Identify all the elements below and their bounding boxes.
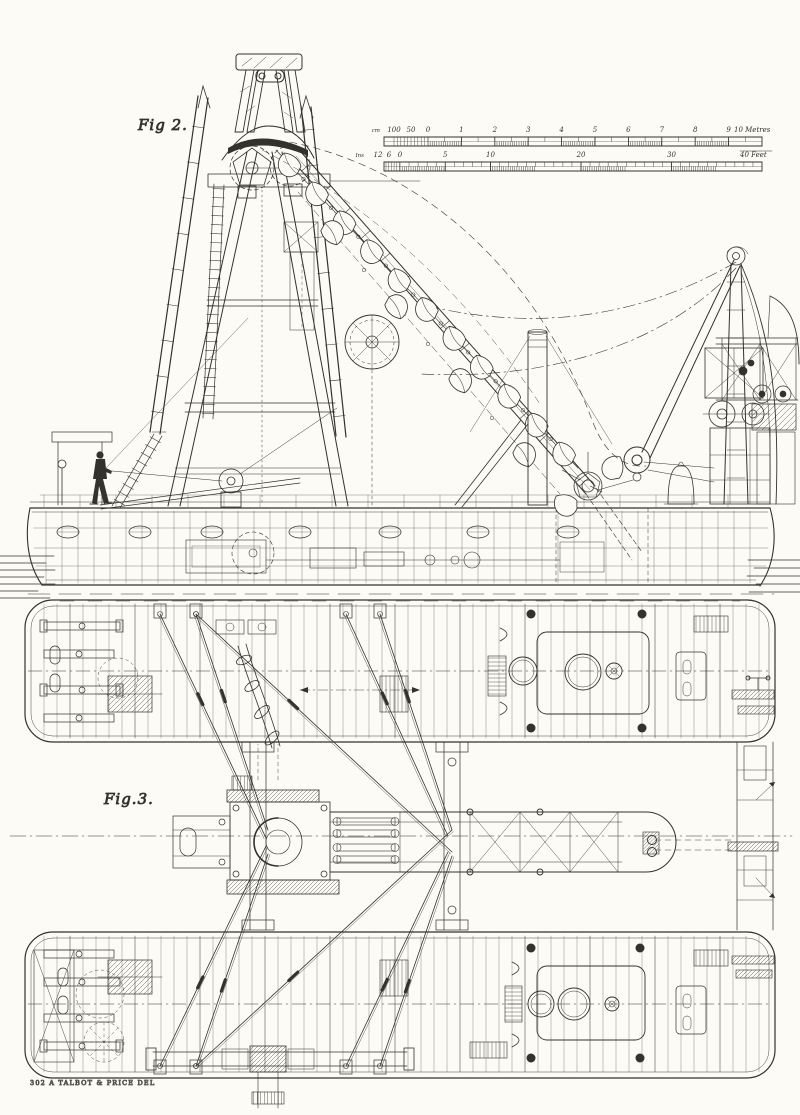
svg-text:Ins: Ins — [354, 153, 364, 159]
man-figure — [90, 451, 112, 504]
stay-rigging — [158, 612, 454, 1069]
water-hatching — [0, 556, 800, 601]
credit-line: 302 A TALBOT & PRICE DEL — [30, 1079, 155, 1087]
tower-cap — [235, 54, 305, 132]
dredger-engineering-drawing: Fig 2. — [0, 0, 800, 1115]
fig2-label: Fig 2. — [137, 116, 188, 134]
underdeck-machinery — [186, 488, 648, 584]
access-ladders — [112, 184, 225, 508]
deck-railing — [44, 495, 728, 507]
ladder-girder — [292, 152, 595, 494]
deck-vent-cowl — [664, 462, 698, 504]
svg-text:2: 2 — [492, 126, 498, 134]
svg-text:0: 0 — [398, 151, 403, 159]
winch-group-bottom — [34, 950, 162, 1062]
scale-bars: cm10050012345678910 Metres Ins1260510203… — [354, 126, 772, 171]
stay-anchors — [154, 604, 733, 1074]
svg-text:6: 6 — [387, 151, 392, 159]
svg-text:9: 9 — [726, 126, 731, 134]
svg-text:12: 12 — [374, 151, 383, 159]
chute-pipe — [216, 620, 420, 748]
svg-text:20: 20 — [576, 151, 586, 159]
guide-curves — [262, 142, 736, 466]
svg-text:30: 30 — [667, 151, 676, 159]
gear-wheel — [345, 315, 399, 505]
fig2-side-elevation: Fig 2. — [0, 54, 800, 601]
fig3-plan-view: Fig.3. — [10, 600, 792, 1108]
center-beam — [146, 744, 414, 1108]
svg-text:5: 5 — [593, 126, 598, 134]
svg-text:3: 3 — [526, 126, 531, 134]
ladder-plan — [173, 776, 676, 894]
svg-text:10: 10 — [486, 151, 495, 159]
imperial-scale-bar: Ins1260510203040 Feet — [354, 151, 772, 171]
jib-pulley-block — [624, 447, 650, 473]
svg-text:0: 0 — [426, 126, 431, 134]
chain-rollers — [333, 818, 399, 864]
svg-text:cm: cm — [372, 128, 380, 134]
timber-stays — [150, 86, 346, 437]
hull-frame-lines — [46, 511, 750, 583]
boiler-casing-bottom — [470, 944, 774, 1063]
metric-scale-bar: cm10050012345678910 Metres — [372, 126, 771, 146]
ladder-strut — [455, 420, 528, 507]
svg-text:50: 50 — [407, 126, 416, 134]
svg-text:6: 6 — [626, 126, 631, 134]
fig3-label: Fig.3. — [103, 790, 154, 808]
bucket-chain-upper — [273, 149, 579, 470]
svg-text:40 Feet: 40 Feet — [739, 151, 767, 159]
pontoon-top — [25, 600, 775, 742]
pontoon-bottom — [25, 932, 775, 1078]
hull — [27, 488, 774, 586]
svg-text:10 Metres: 10 Metres — [734, 126, 771, 134]
svg-text:4: 4 — [558, 126, 563, 134]
pivot-turntable — [227, 776, 339, 894]
gantry-tower — [52, 54, 420, 508]
engraving-sheet: Fig 2. — [0, 0, 800, 1115]
svg-text:100: 100 — [387, 126, 401, 134]
svg-text:8: 8 — [693, 126, 698, 134]
ladder-forward-extension — [173, 816, 230, 868]
svg-text:5: 5 — [443, 151, 448, 159]
crane-mast — [724, 264, 777, 504]
svg-text:7: 7 — [660, 126, 665, 134]
svg-text:1: 1 — [459, 126, 463, 134]
